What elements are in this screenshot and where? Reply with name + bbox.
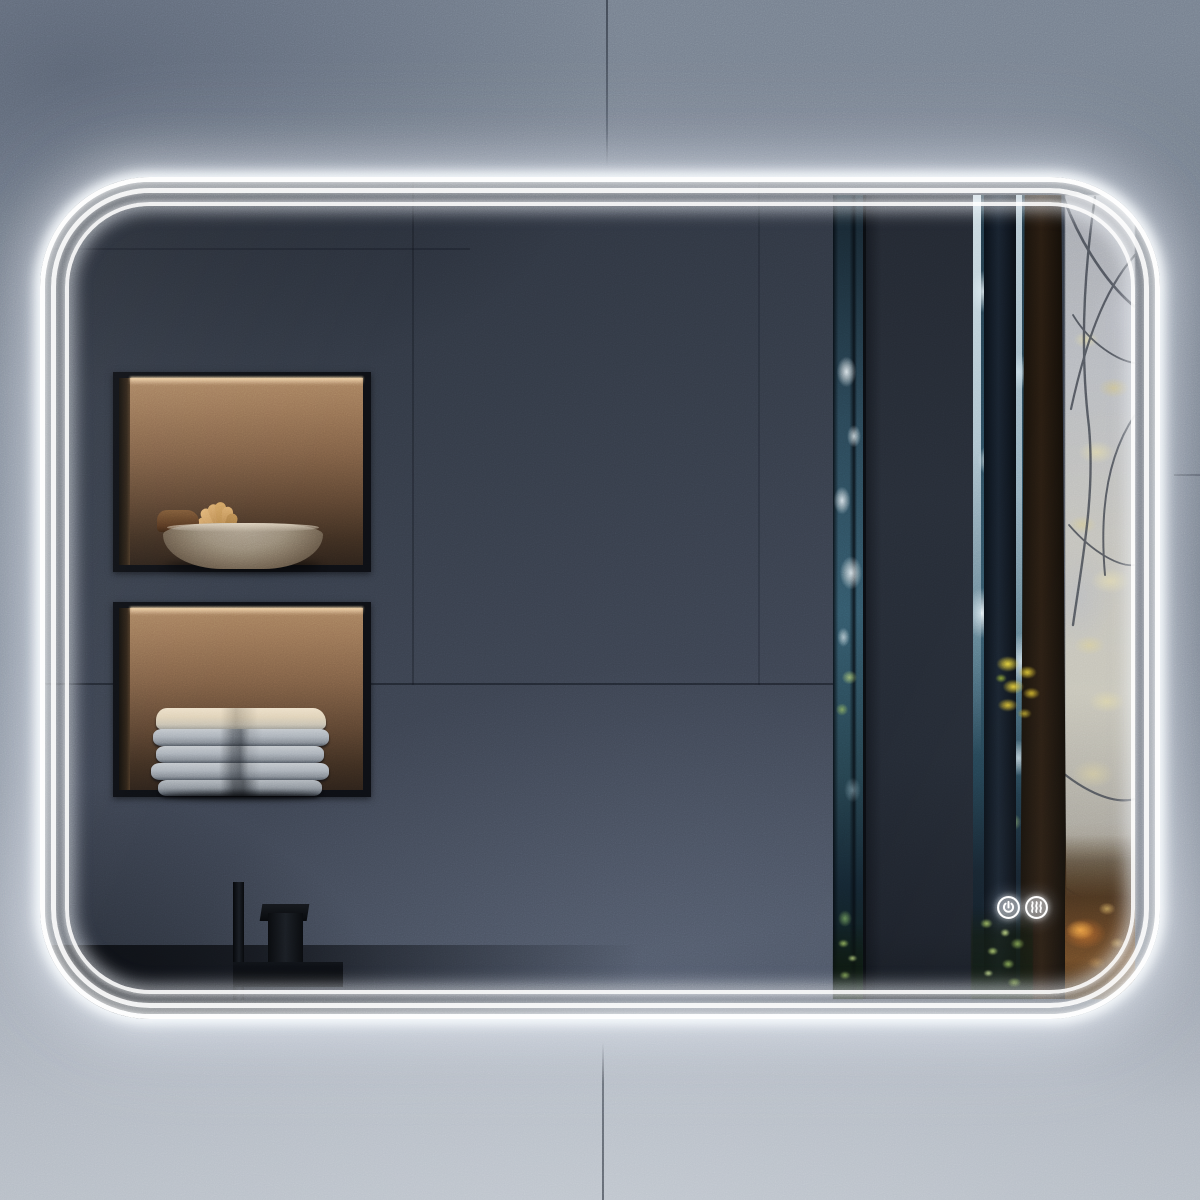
defogger-button[interactable] — [1024, 895, 1049, 920]
touch-controls — [996, 895, 1049, 920]
led-mirror — [40, 177, 1160, 1019]
product-photo-scene — [0, 0, 1200, 1200]
power-button[interactable] — [996, 895, 1021, 920]
mirror-reflection — [40, 177, 1160, 1019]
wall-tile-seam-horizontal-right — [1174, 474, 1200, 476]
wall-tile-seam-vertical-bottom — [602, 1042, 604, 1200]
glass-sheen — [40, 177, 1160, 1019]
power-icon — [996, 895, 1021, 920]
wall-tile-seam-vertical-top — [606, 0, 608, 168]
defogger-icon — [1024, 895, 1049, 920]
